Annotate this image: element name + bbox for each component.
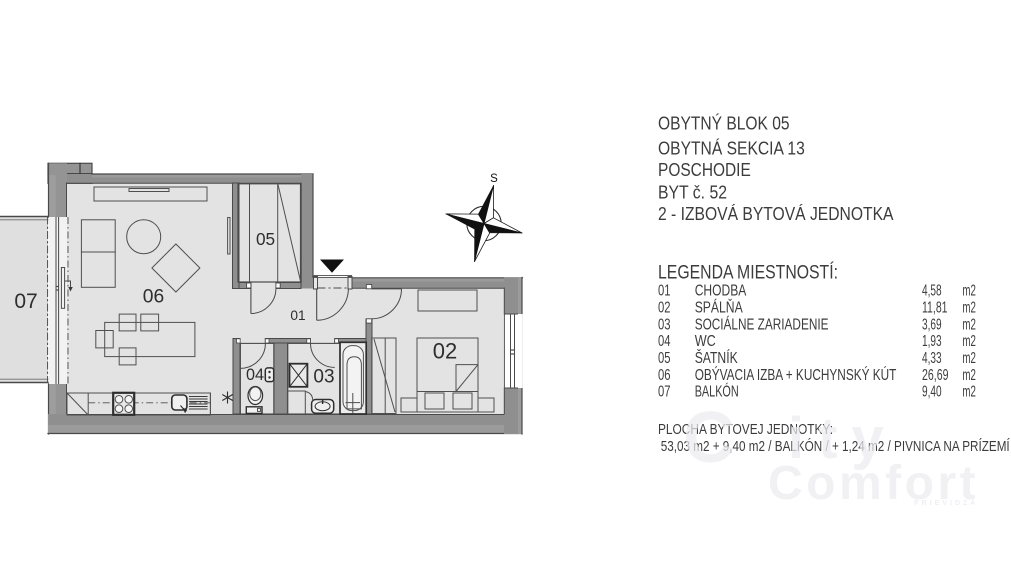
svg-text:04: 04 bbox=[246, 366, 264, 384]
svg-text:BYT č. 52: BYT č. 52 bbox=[658, 182, 727, 203]
svg-text:04: 04 bbox=[658, 333, 671, 350]
svg-text:1,93: 1,93 bbox=[922, 333, 942, 350]
svg-text:07: 07 bbox=[658, 384, 671, 401]
svg-text:PRIEVIDZA: PRIEVIDZA bbox=[914, 500, 978, 507]
svg-text:m2: m2 bbox=[962, 283, 976, 300]
svg-text:OBYTNÁ SEKCIA 13: OBYTNÁ SEKCIA 13 bbox=[658, 138, 805, 159]
svg-text:m2: m2 bbox=[962, 350, 976, 367]
svg-text:S: S bbox=[490, 173, 498, 185]
svg-text:05: 05 bbox=[658, 350, 671, 367]
svg-text:03: 03 bbox=[313, 367, 334, 388]
svg-text:SPÁLŇA: SPÁLŇA bbox=[695, 298, 743, 317]
svg-text:4,58: 4,58 bbox=[922, 283, 942, 300]
svg-text:OBÝVACIA IZBA + KUCHYNSKÝ KÚT: OBÝVACIA IZBA + KUCHYNSKÝ KÚT bbox=[695, 365, 897, 384]
svg-text:02: 02 bbox=[433, 338, 457, 363]
svg-text:ŠATNÍK: ŠATNÍK bbox=[695, 348, 738, 367]
svg-text:2 - IZBOVÁ BYTOVÁ JEDNOTKA: 2 - IZBOVÁ BYTOVÁ JEDNOTKA bbox=[658, 203, 894, 224]
svg-text:LEGENDA MIESTNOSTÍ:: LEGENDA MIESTNOSTÍ: bbox=[658, 260, 838, 283]
svg-text:SOCIÁLNE ZARIADENIE: SOCIÁLNE ZARIADENIE bbox=[695, 314, 829, 333]
svg-text:03: 03 bbox=[658, 316, 671, 333]
svg-text:WC: WC bbox=[695, 333, 716, 350]
svg-text:07: 07 bbox=[14, 290, 37, 313]
svg-text:m2: m2 bbox=[962, 316, 976, 333]
svg-text:11,81: 11,81 bbox=[922, 300, 948, 317]
svg-text:01: 01 bbox=[290, 308, 305, 323]
svg-text:CHODBA: CHODBA bbox=[695, 283, 747, 300]
svg-text:m2: m2 bbox=[962, 333, 976, 350]
svg-text:m2: m2 bbox=[962, 300, 976, 317]
svg-text:06: 06 bbox=[143, 287, 164, 308]
svg-text:4,33: 4,33 bbox=[922, 350, 942, 367]
svg-text:26,69: 26,69 bbox=[922, 367, 949, 384]
svg-text:02: 02 bbox=[658, 300, 671, 317]
svg-text:01: 01 bbox=[658, 283, 671, 300]
svg-text:9,40: 9,40 bbox=[922, 384, 942, 401]
svg-text:OBYTNÝ BLOK 05: OBYTNÝ BLOK 05 bbox=[658, 113, 790, 134]
svg-text:m2: m2 bbox=[962, 367, 976, 384]
svg-text:06: 06 bbox=[658, 367, 671, 384]
svg-text:3,69: 3,69 bbox=[922, 316, 942, 333]
svg-text:POSCHODIE: POSCHODIE bbox=[658, 159, 751, 180]
svg-text:05: 05 bbox=[256, 229, 275, 249]
svg-text:C: C bbox=[683, 398, 735, 478]
svg-text:m2: m2 bbox=[962, 384, 976, 401]
